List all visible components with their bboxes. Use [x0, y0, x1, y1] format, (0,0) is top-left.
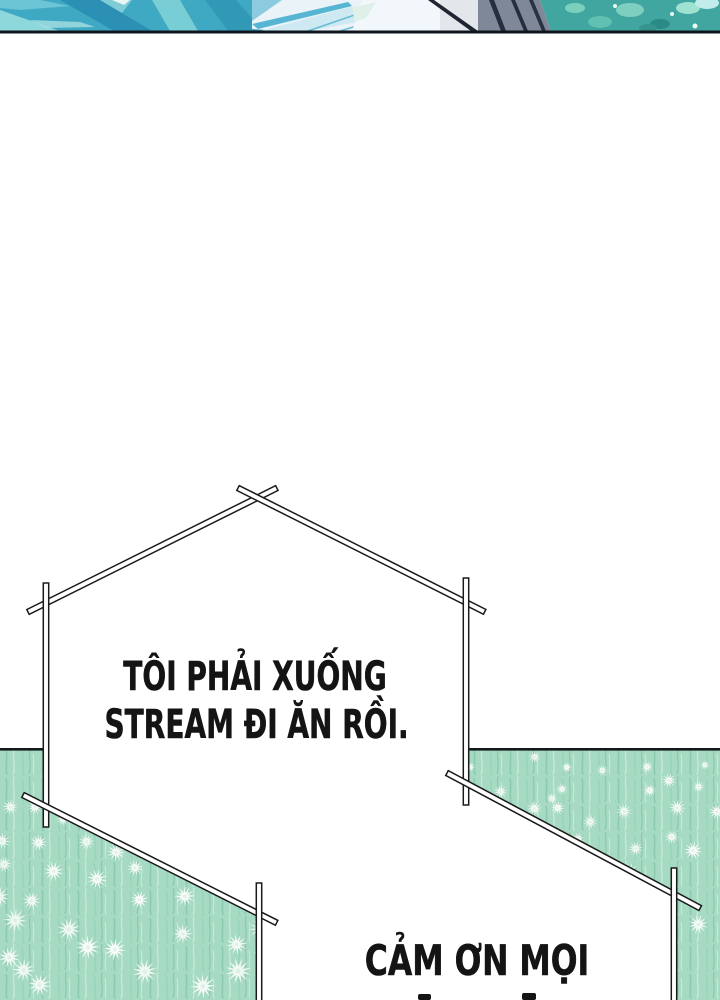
clipped-text-fragment: [418, 994, 431, 1000]
bubble-edge-stick: [237, 486, 486, 615]
top-panel-art: [0, 0, 720, 34]
speech-bubble-2: CẢM ƠN MỌI: [292, 936, 662, 986]
speech-bubble-1: TÔI PHẢI XUỐNG STREAM ĐI ĂN RỒI.: [40, 653, 470, 749]
bubble-edge-stick: [27, 486, 278, 615]
bubble-1-line-2: STREAM ĐI ĂN RỒI.: [105, 701, 406, 749]
bubble-2-line-1: CẢM ƠN MỌI: [338, 936, 616, 986]
clipped-text-fragment: [522, 993, 536, 1000]
panel-border-line: [0, 31, 720, 34]
bubble-1-line-1: TÔI PHẢI XUỐNG: [105, 653, 406, 701]
comic-page: TÔI PHẢI XUỐNG STREAM ĐI ĂN RỒI. CẢM ƠN …: [0, 0, 720, 1000]
top-comic-panel: [0, 0, 720, 34]
